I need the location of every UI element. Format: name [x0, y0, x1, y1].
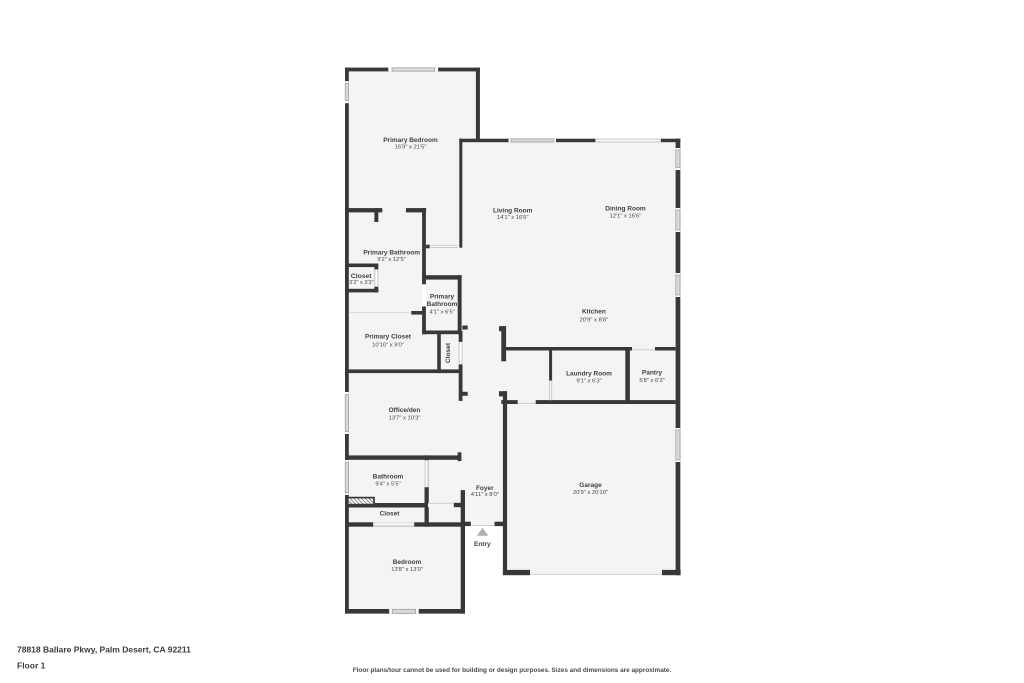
svg-text:78818 Ballare Pkwy, Palm Deser: 78818 Ballare Pkwy, Palm Desert, CA 9221… — [17, 645, 191, 655]
svg-text:Floor plans/tour cannot be use: Floor plans/tour cannot be used for buil… — [353, 667, 672, 674]
svg-text:9'4" x 5'5": 9'4" x 5'5" — [375, 482, 400, 488]
svg-text:9'2" x 12'5": 9'2" x 12'5" — [377, 257, 406, 263]
svg-text:10'10" x 9'0": 10'10" x 9'0" — [372, 343, 404, 349]
svg-text:15'9" x 21'5": 15'9" x 21'5" — [395, 145, 427, 151]
svg-text:Bathroom: Bathroom — [373, 474, 404, 481]
svg-text:Closet: Closet — [445, 342, 452, 363]
svg-text:Foyer: Foyer — [476, 485, 494, 492]
svg-text:20'9" x 8'8": 20'9" x 8'8" — [580, 318, 609, 324]
svg-text:20'9" x 20'10": 20'9" x 20'10" — [573, 490, 608, 496]
svg-text:Bedroom: Bedroom — [393, 559, 422, 566]
svg-text:Garage: Garage — [579, 482, 602, 489]
svg-text:Primary Bedroom: Primary Bedroom — [383, 137, 438, 144]
svg-text:5'8" x 6'3": 5'8" x 6'3" — [639, 378, 664, 384]
svg-text:Bathroom: Bathroom — [427, 301, 458, 308]
svg-text:Primary: Primary — [430, 294, 455, 301]
svg-text:Entry: Entry — [474, 541, 491, 548]
svg-text:Dining Room: Dining Room — [605, 205, 646, 212]
svg-text:12'1" x 16'6": 12'1" x 16'6" — [610, 213, 642, 219]
svg-text:4'11" x 8'0": 4'11" x 8'0" — [471, 492, 499, 498]
svg-text:Office/den: Office/den — [389, 407, 421, 414]
svg-text:Primary Closet: Primary Closet — [365, 333, 412, 340]
svg-text:Floor 1: Floor 1 — [17, 661, 46, 671]
svg-text:Closet: Closet — [380, 510, 401, 517]
svg-text:14'1" x 16'6": 14'1" x 16'6" — [497, 215, 529, 221]
svg-text:3'2" x 3'3": 3'2" x 3'3" — [349, 280, 373, 286]
svg-text:13'7" x 10'3": 13'7" x 10'3" — [389, 416, 421, 422]
svg-text:Closet: Closet — [351, 273, 373, 280]
svg-text:Living Room: Living Room — [493, 207, 533, 214]
svg-text:4'1" x 6'5": 4'1" x 6'5" — [429, 310, 454, 316]
svg-text:Kitchen: Kitchen — [582, 309, 606, 316]
svg-text:13'8" x 13'0": 13'8" x 13'0" — [391, 567, 423, 573]
svg-text:9'1" x 6'3": 9'1" x 6'3" — [576, 378, 601, 384]
svg-text:Pantry: Pantry — [642, 370, 663, 377]
svg-text:Primary Bathroom: Primary Bathroom — [363, 249, 420, 256]
svg-text:Laundry Room: Laundry Room — [566, 371, 612, 378]
